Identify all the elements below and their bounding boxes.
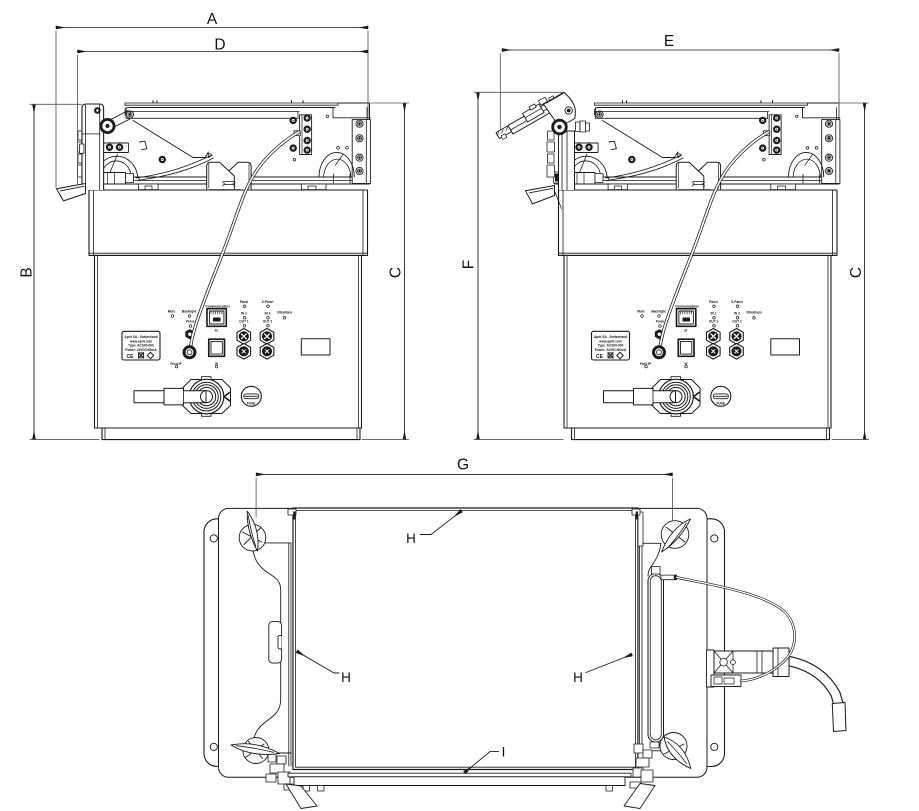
svg-text:A: A bbox=[207, 11, 218, 28]
svg-text:I: I bbox=[502, 745, 506, 760]
svg-text:B: B bbox=[19, 267, 36, 277]
svg-text:F: F bbox=[461, 260, 478, 269]
svg-text:H: H bbox=[573, 670, 583, 685]
svg-text:C: C bbox=[388, 267, 405, 278]
svg-text:H: H bbox=[406, 531, 416, 546]
svg-text:C: C bbox=[848, 267, 865, 278]
svg-text:H: H bbox=[341, 670, 351, 685]
svg-text:G: G bbox=[457, 457, 469, 474]
svg-text:D: D bbox=[214, 37, 225, 54]
svg-text:E: E bbox=[664, 33, 674, 50]
